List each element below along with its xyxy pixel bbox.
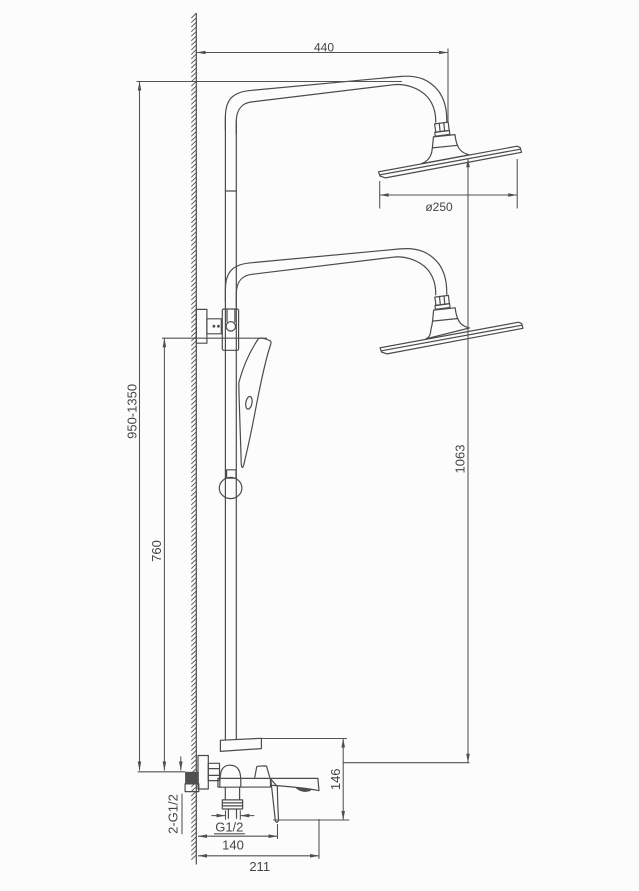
svg-text:950-1350: 950-1350: [124, 384, 139, 439]
svg-text:760: 760: [149, 540, 164, 562]
svg-text:140: 140: [222, 837, 244, 852]
svg-text:G1/2: G1/2: [215, 820, 243, 835]
svg-text:211: 211: [249, 859, 270, 874]
svg-text:1063: 1063: [453, 445, 468, 474]
svg-text:ø250: ø250: [425, 200, 453, 214]
svg-text:440: 440: [314, 40, 334, 54]
svg-text:2-G1/2: 2-G1/2: [166, 794, 181, 834]
svg-text:146: 146: [328, 768, 343, 790]
